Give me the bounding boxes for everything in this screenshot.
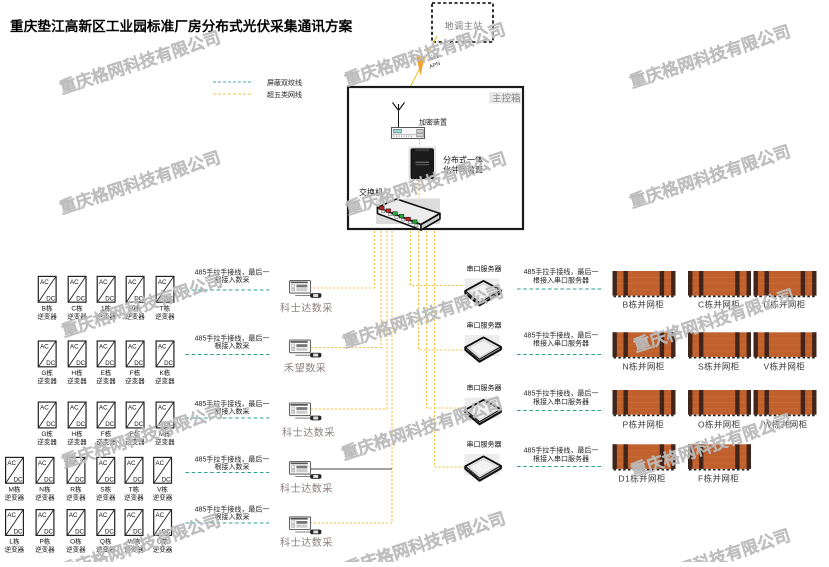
svg-text:G栋: G栋 [41, 429, 53, 438]
svg-text:逆变器: 逆变器 [124, 492, 144, 501]
svg-text:逆变器: 逆变器 [35, 492, 55, 501]
svg-text:N栋并网柜: N栋并网柜 [623, 362, 665, 372]
svg-text:串口服务器: 串口服务器 [467, 321, 502, 330]
svg-text:485手拉手接线，最后一: 485手拉手接线，最后一 [195, 505, 270, 514]
svg-text:逆变器: 逆变器 [96, 376, 116, 385]
svg-text:逆变器: 逆变器 [67, 376, 87, 385]
svg-text:N栋: N栋 [39, 484, 51, 493]
svg-text:科士达数采: 科士达数采 [280, 536, 333, 549]
svg-text:根接入串口服务器: 根接入串口服务器 [533, 339, 589, 348]
svg-text:B栋并网柜: B栋并网柜 [623, 300, 665, 310]
svg-text:科士达数采: 科士达数采 [280, 482, 333, 495]
svg-text:485手拉手接线，最后一: 485手拉手接线，最后一 [524, 389, 599, 398]
svg-text:科士达数采: 科士达数采 [282, 426, 335, 439]
svg-text:V栋: V栋 [157, 484, 168, 493]
svg-text:E栋: E栋 [101, 368, 112, 377]
svg-text:串口服务器: 串口服务器 [467, 383, 502, 392]
svg-text:H栋: H栋 [71, 429, 83, 438]
svg-text:485手拉手接线，最后一: 485手拉手接线，最后一 [195, 334, 270, 343]
svg-text:S栋: S栋 [100, 484, 111, 493]
svg-text:逆变器: 逆变器 [35, 545, 55, 554]
svg-text:重庆垫江高新区工业园标准厂房分布式光伏采集通讯方案: 重庆垫江高新区工业园标准厂房分布式光伏采集通讯方案 [10, 18, 353, 34]
svg-text:485手拉手接线，最后一: 485手拉手接线，最后一 [524, 267, 599, 276]
svg-text:逆变器: 逆变器 [96, 492, 116, 501]
svg-text:根接入串口服务器: 根接入串口服务器 [533, 276, 589, 285]
svg-text:根接入串口服务器: 根接入串口服务器 [533, 454, 589, 463]
svg-text:P栋并网柜: P栋并网柜 [623, 420, 665, 430]
svg-text:O栋: O栋 [70, 537, 82, 546]
svg-text:485手拉手接线，最后一: 485手拉手接线，最后一 [524, 331, 599, 340]
svg-text:L栋: L栋 [9, 537, 20, 546]
svg-text:G栋: G栋 [41, 368, 53, 377]
svg-text:485手拉手接线，最后一: 485手拉手接线，最后一 [524, 446, 599, 455]
svg-text:逆变器: 逆变器 [155, 311, 175, 320]
svg-text:逆变器: 逆变器 [37, 437, 57, 446]
svg-text:串口服务器: 串口服务器 [467, 440, 502, 449]
svg-text:主控箱: 主控箱 [492, 93, 521, 105]
svg-text:根接入串口服务器: 根接入串口服务器 [533, 397, 589, 406]
svg-text:科士达数采: 科士达数采 [280, 302, 333, 315]
svg-text:串口服务器: 串口服务器 [467, 264, 502, 273]
svg-text:P栋: P栋 [39, 537, 50, 546]
svg-text:Q栋: Q栋 [100, 537, 112, 546]
svg-text:S栋并网柜: S栋并网柜 [698, 362, 740, 372]
svg-text:R栋: R栋 [70, 484, 82, 493]
svg-text:禾望数采: 禾望数采 [284, 362, 326, 375]
svg-text:逆变器: 逆变器 [66, 545, 86, 554]
svg-text:V栋并网柜: V栋并网柜 [764, 362, 806, 372]
svg-text:逆变器: 逆变器 [155, 376, 175, 385]
svg-text:H栋: H栋 [71, 368, 83, 377]
svg-text:根接入数采: 根接入数采 [215, 462, 250, 471]
svg-text:逆变器: 逆变器 [153, 492, 173, 501]
svg-text:超五类网线: 超五类网线 [267, 90, 302, 99]
svg-text:逆变器: 逆变器 [5, 545, 25, 554]
svg-text:屏蔽双绞线: 屏蔽双绞线 [267, 78, 302, 87]
svg-text:C栋: C栋 [71, 303, 83, 312]
svg-text:逆变器: 逆变器 [5, 492, 25, 501]
svg-text:F栋并网柜: F栋并网柜 [698, 474, 739, 484]
svg-text:T栋: T栋 [129, 484, 140, 493]
svg-text:M栋: M栋 [8, 484, 20, 493]
svg-text:逆变器: 逆变器 [125, 376, 145, 385]
svg-text:485手拉手接线，最后一: 485手拉手接线，最后一 [195, 455, 270, 464]
svg-text:逆变器: 逆变器 [37, 311, 57, 320]
svg-text:B栋: B栋 [42, 303, 53, 312]
svg-text:根接入数采: 根接入数采 [215, 341, 250, 350]
svg-text:逆变器: 逆变器 [37, 376, 57, 385]
svg-text:K栋: K栋 [159, 368, 170, 377]
svg-text:加密装置: 加密装置 [419, 118, 447, 127]
svg-text:F栋: F栋 [130, 368, 141, 377]
svg-text:逆变器: 逆变器 [66, 492, 86, 501]
